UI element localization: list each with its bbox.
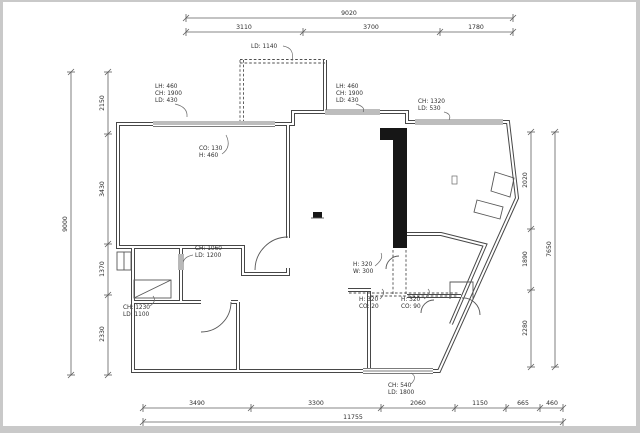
dim-label: 3300 xyxy=(308,400,324,407)
svg-text:LD: 430: LD: 430 xyxy=(336,98,359,104)
dim-label: 2330 xyxy=(99,326,106,342)
annotation-window-right: CH: 1320 LD: 530 xyxy=(418,99,450,120)
drawing-sheet: 9020 3110 3700 1780 9000 2150 3430 1370 … xyxy=(3,2,636,426)
dim-label: 665 xyxy=(517,400,529,407)
window-living-top xyxy=(325,110,380,115)
dim-label: 460 xyxy=(546,400,558,407)
annotation-window-mid: LH: 460 CH: 1900 LD: 430 xyxy=(336,84,364,112)
door-leaf-bedroom2 xyxy=(474,200,503,219)
dim-label: 2280 xyxy=(522,320,529,336)
svg-text:CH: 1230: CH: 1230 xyxy=(123,305,150,311)
window-bedroom1-top xyxy=(153,121,275,127)
svg-text:LD: 1200: LD: 1200 xyxy=(195,253,222,259)
door-bedroom3 xyxy=(201,299,231,332)
dim-label: 3700 xyxy=(363,24,379,31)
dim-label: 3430 xyxy=(99,181,106,197)
door-arc-bath-b xyxy=(421,300,434,313)
annotation-bath-niche: H: 320 W: 300 xyxy=(353,253,382,275)
annotation-balcony-depth: LD: 1140 xyxy=(251,44,293,61)
dim-label: 11755 xyxy=(343,414,363,421)
kitchen-counter xyxy=(134,280,171,298)
svg-text:H: 320: H: 320 xyxy=(401,297,421,303)
dim-label: 3490 xyxy=(189,400,205,407)
svg-text:H: 320: H: 320 xyxy=(353,262,373,268)
svg-text:CH: 1060: CH: 1060 xyxy=(195,246,222,252)
annotation-bath-opening-a: H: 320 CO: 20 xyxy=(359,289,384,310)
window-bedroom2-top xyxy=(415,120,503,125)
balcony-dashed-outline xyxy=(240,60,325,125)
svg-text:H: 320: H: 320 xyxy=(359,297,379,303)
svg-text:LD: 1100: LD: 1100 xyxy=(123,312,150,318)
dim-label: 1150 xyxy=(472,400,488,407)
svg-text:CH: 1900: CH: 1900 xyxy=(336,91,363,97)
svg-text:CO: 20: CO: 20 xyxy=(359,304,379,310)
svg-text:LH: 460: LH: 460 xyxy=(336,84,359,90)
svg-text:CH: 1320: CH: 1320 xyxy=(418,99,445,105)
svg-text:LH: 460: LH: 460 xyxy=(155,84,178,90)
floor-plan-canvas: 9020 3110 3700 1780 9000 2150 3430 1370 … xyxy=(3,2,636,426)
annotation-kitchen-window: CH: 1230 LD: 1100 xyxy=(123,296,154,318)
svg-text:H: 460: H: 460 xyxy=(199,153,219,159)
annotation-bottom-window: CH: 540 LD: 1800 xyxy=(388,373,415,396)
dim-label: 1370 xyxy=(99,261,106,277)
svg-text:CH: 540: CH: 540 xyxy=(388,383,412,389)
annotation-sill: CO: 130 H: 460 xyxy=(199,135,228,159)
svg-text:LD: 430: LD: 430 xyxy=(155,98,178,104)
door-arc-bath-a xyxy=(386,256,399,269)
dim-label: 2060 xyxy=(410,400,426,407)
dim-label: 1780 xyxy=(468,24,484,31)
dim-label: 9000 xyxy=(62,216,69,232)
svg-text:LD: 530: LD: 530 xyxy=(418,106,441,112)
dim-top-segments xyxy=(183,28,516,36)
svg-text:CO: 130: CO: 130 xyxy=(199,146,223,152)
door-bedroom1 xyxy=(255,237,291,270)
dim-label: 9020 xyxy=(341,10,357,17)
svg-text:CH: 1900: CH: 1900 xyxy=(155,91,182,97)
dim-label: 7650 xyxy=(546,241,553,257)
svg-text:CO: 90: CO: 90 xyxy=(401,304,421,310)
dim-label: 3110 xyxy=(236,24,252,31)
dim-label: 2020 xyxy=(522,172,529,188)
window-kitchen-left xyxy=(117,252,131,270)
floor-drain-symbol xyxy=(311,212,324,218)
annotation-bath-opening-b: H: 320 CO: 90 xyxy=(401,289,429,310)
wall-fixture-symbol xyxy=(452,176,457,184)
dim-label: 2150 xyxy=(99,95,106,111)
svg-text:LD: 1140: LD: 1140 xyxy=(251,44,278,50)
corner-shelf xyxy=(491,172,514,197)
concrete-column xyxy=(380,128,407,248)
dim-label: 1890 xyxy=(522,251,529,267)
dim-labels: 9020 3110 3700 1780 9000 2150 3430 1370 … xyxy=(62,10,558,421)
svg-text:W: 300: W: 300 xyxy=(353,269,374,275)
svg-text:LD: 1800: LD: 1800 xyxy=(388,390,415,396)
window-bottom xyxy=(363,368,433,374)
annotation-window-left: LH: 460 CH: 1900 LD: 430 xyxy=(155,84,187,117)
